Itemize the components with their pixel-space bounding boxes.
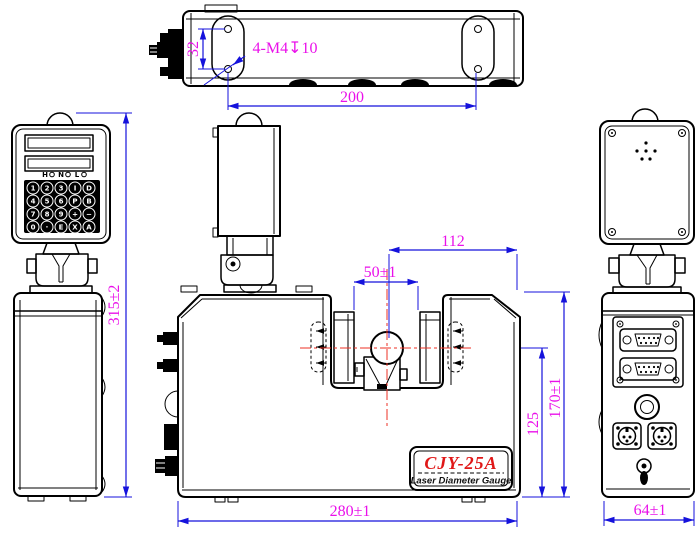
dim-axis-height: 125 bbox=[521, 348, 548, 497]
dim-text-112: 112 bbox=[441, 233, 464, 250]
left-bracket bbox=[27, 243, 97, 293]
dim-text-64: 64±1 bbox=[634, 502, 667, 519]
svg-text:6: 6 bbox=[59, 198, 64, 206]
dim-text-125: 125 bbox=[525, 412, 542, 436]
svg-text:8: 8 bbox=[45, 211, 50, 219]
toggle-switch bbox=[637, 459, 651, 485]
side-fittings bbox=[155, 332, 178, 476]
dim-side-width: 64±1 bbox=[604, 501, 694, 526]
dim-text-170: 170±1 bbox=[547, 378, 564, 419]
dim-body-width: 280±1 bbox=[178, 501, 517, 527]
right-view: 64±1 bbox=[599, 109, 694, 526]
db9-pins-bottom bbox=[638, 366, 659, 373]
top-view-connector bbox=[149, 29, 184, 79]
svg-text:9: 9 bbox=[59, 211, 64, 219]
left-body bbox=[14, 293, 105, 501]
svg-text:1: 1 bbox=[31, 185, 36, 193]
display-head-back bbox=[600, 121, 694, 244]
svg-text:A: A bbox=[86, 224, 92, 232]
dim-text-50: 50±1 bbox=[364, 264, 397, 281]
aviation-connector-left bbox=[613, 423, 641, 449]
svg-text:−: − bbox=[86, 211, 92, 219]
svg-text:D: D bbox=[86, 185, 92, 193]
svg-text:B: B bbox=[86, 198, 91, 206]
label-plate: CJY-25A Laser Diameter Gauge bbox=[410, 447, 512, 490]
indicator-l-lamp bbox=[82, 172, 87, 177]
svg-text:5: 5 bbox=[45, 198, 50, 206]
svg-text:7: 7 bbox=[31, 211, 36, 219]
left-laser-window bbox=[311, 322, 326, 372]
svg-text:E: E bbox=[59, 224, 64, 232]
svg-text:I: I bbox=[74, 185, 77, 193]
dim-text-280: 280±1 bbox=[330, 503, 371, 520]
dim-text-315: 315±2 bbox=[106, 285, 123, 326]
indicator-l-label: L bbox=[75, 171, 80, 179]
measuring-slot bbox=[300, 269, 472, 427]
indicator-h-lamp bbox=[50, 172, 55, 177]
svg-text:+: + bbox=[72, 211, 78, 219]
right-bracket bbox=[609, 244, 685, 293]
connector-plate bbox=[613, 317, 683, 387]
top-view: 32 4-M4↧10 200 bbox=[149, 5, 523, 110]
svg-text:·: · bbox=[46, 224, 49, 232]
status-indicators: H N L bbox=[42, 171, 86, 179]
display-window-1 bbox=[25, 135, 93, 151]
svg-text:3: 3 bbox=[59, 185, 64, 193]
dim-slot-width: 50±1 bbox=[354, 264, 418, 310]
right-laser-window bbox=[448, 322, 463, 372]
keypad: 1 2 3 I D 4 5 6 P B 7 8 9 + − 0 · E X A bbox=[24, 180, 100, 233]
svg-text:0: 0 bbox=[31, 224, 36, 232]
drawing-svg: 32 4-M4↧10 200 H N bbox=[0, 0, 700, 537]
indicator-n-label: N bbox=[58, 171, 64, 179]
left-view: H N L 1 2 3 I D 4 5 6 bbox=[12, 113, 132, 501]
svg-text:X: X bbox=[72, 224, 78, 232]
round-connector bbox=[635, 395, 659, 419]
thread-callout-text: 4-M4↧10 bbox=[253, 40, 318, 57]
dim-text-200: 200 bbox=[340, 89, 364, 106]
front-view: CJY-25A Laser Diameter Gauge 112 50±1 17… bbox=[155, 113, 570, 527]
dim-text-32: 32 bbox=[185, 41, 202, 57]
technical-drawing: 32 4-M4↧10 200 H N bbox=[0, 0, 700, 537]
db9-pins-top bbox=[638, 337, 659, 344]
aviation-connector-right bbox=[648, 423, 676, 449]
pillar bbox=[181, 113, 312, 293]
indicator-n-lamp bbox=[66, 172, 71, 177]
svg-text:2: 2 bbox=[45, 185, 50, 193]
indicator-h-label: H bbox=[42, 171, 48, 179]
model-label: CJY-25A bbox=[424, 453, 497, 473]
dim-hole-pitch: 200 bbox=[228, 73, 476, 110]
svg-text:4: 4 bbox=[31, 198, 36, 206]
product-name-label: Laser Diameter Gauge bbox=[411, 476, 513, 487]
svg-text:P: P bbox=[72, 198, 77, 206]
speaker-holes bbox=[635, 141, 656, 160]
display-window-2 bbox=[25, 156, 93, 171]
db9-connector-bottom bbox=[620, 358, 676, 380]
db9-connector-top bbox=[620, 329, 676, 351]
dim-body-height: 170±1 bbox=[522, 292, 570, 497]
